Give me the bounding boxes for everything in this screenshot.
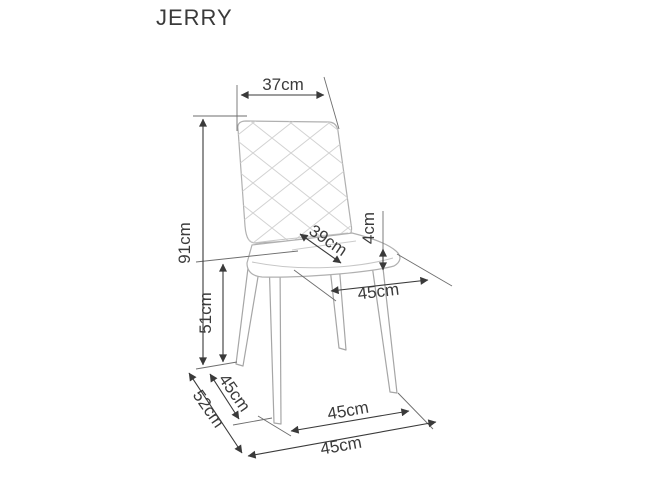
chair-backrest	[238, 121, 352, 243]
chair-dimension-drawing: 37cm 91cm 51cm 39cm 4cm 45cm 52cm 45cm 4…	[0, 0, 648, 486]
label-cushion-thickness: 4cm	[359, 212, 378, 244]
backrest-quilt-pattern	[238, 121, 352, 243]
label-backrest-width: 37cm	[262, 75, 304, 94]
chair-leg-front-right	[371, 258, 397, 393]
label-seat-width: 45cm	[357, 280, 401, 304]
label-seat-height: 51cm	[196, 292, 215, 334]
label-total-height: 91cm	[175, 222, 194, 264]
label-leg-span-front: 45cm	[326, 398, 370, 424]
dimension-diagram-page: JERRY	[0, 0, 648, 486]
chair-leg-front-left	[269, 258, 281, 424]
chair-illustration	[236, 121, 400, 424]
label-base-width: 45cm	[319, 433, 363, 459]
